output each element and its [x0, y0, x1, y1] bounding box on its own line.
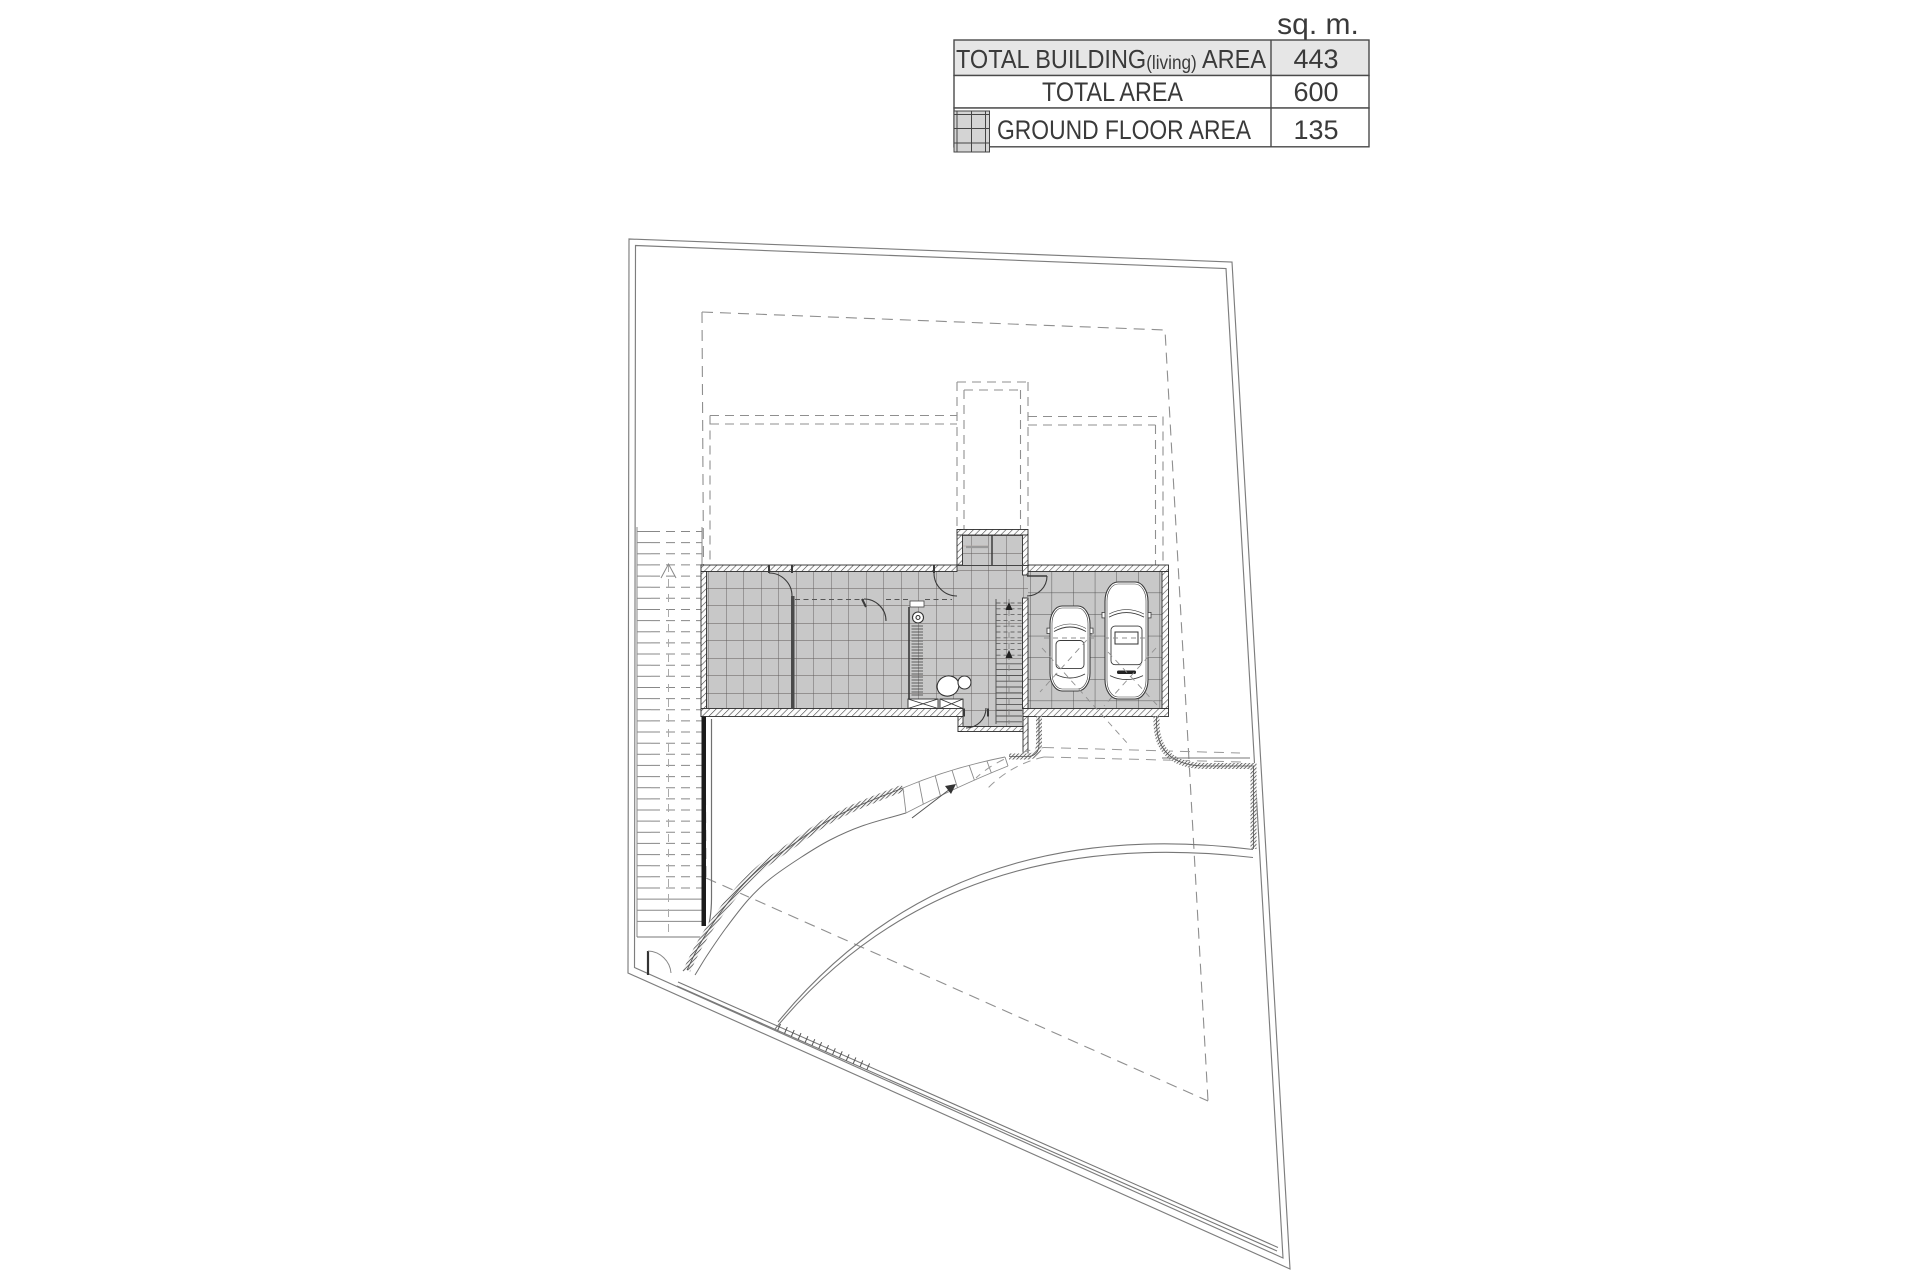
svg-text:TOTAL AREA: TOTAL AREA [1042, 77, 1183, 107]
svg-text:GROUND FLOOR AREA: GROUND FLOOR AREA [997, 115, 1251, 145]
svg-text:443: 443 [1293, 44, 1338, 74]
svg-text:TOTAL BUILDING(living) AREA: TOTAL BUILDING(living) AREA [956, 44, 1267, 74]
svg-text:sq. m.: sq. m. [1277, 8, 1359, 41]
svg-text:600: 600 [1293, 77, 1338, 107]
svg-text:135: 135 [1293, 115, 1338, 145]
